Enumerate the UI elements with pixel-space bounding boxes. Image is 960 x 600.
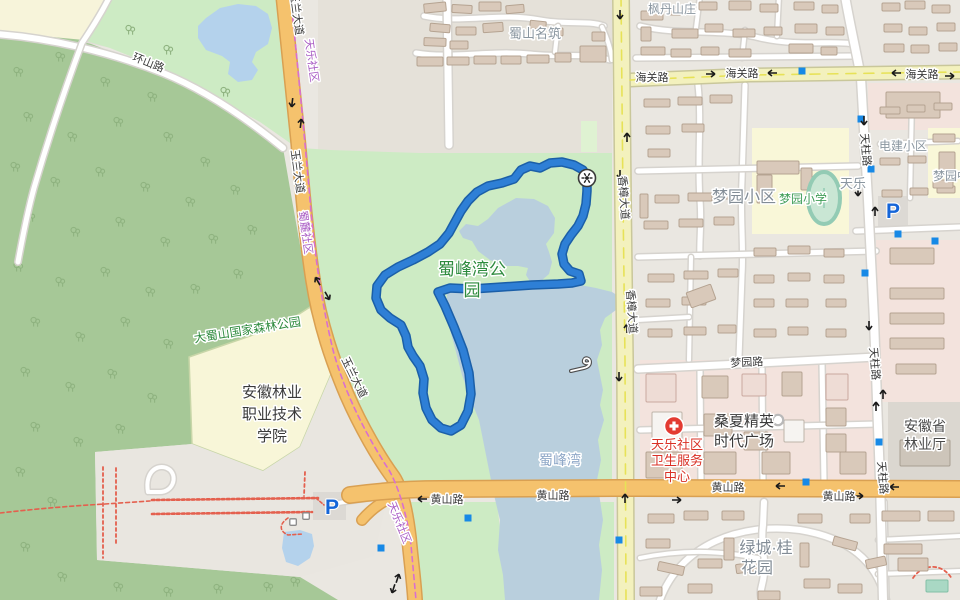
building bbox=[506, 4, 525, 14]
building bbox=[640, 194, 648, 218]
map-label[interactable]: 学院 bbox=[257, 427, 287, 445]
building bbox=[788, 327, 808, 335]
building bbox=[456, 27, 476, 35]
building bbox=[644, 99, 670, 107]
map-label[interactable]: 时代广场 bbox=[714, 433, 774, 450]
map-label[interactable]: 花园 bbox=[741, 559, 773, 577]
parking-icon-east[interactable]: P bbox=[886, 200, 900, 223]
building bbox=[641, 47, 665, 55]
building bbox=[826, 434, 846, 452]
building bbox=[937, 23, 955, 31]
bus-stop-icon[interactable] bbox=[932, 238, 939, 245]
building bbox=[933, 134, 955, 142]
map-label[interactable]: 电建小区 bbox=[879, 139, 927, 153]
map-label[interactable]: 桑夏精英 bbox=[714, 412, 774, 430]
map-label[interactable]: 林业厅 bbox=[904, 436, 946, 452]
building bbox=[788, 273, 810, 281]
map-label: 黄山路 bbox=[431, 492, 464, 506]
building bbox=[483, 22, 504, 32]
bus-stop-icon[interactable] bbox=[803, 479, 810, 486]
building bbox=[754, 248, 776, 256]
building bbox=[474, 56, 496, 64]
building bbox=[910, 188, 928, 195]
building bbox=[580, 46, 606, 62]
building bbox=[939, 152, 955, 170]
building bbox=[880, 158, 900, 165]
building bbox=[672, 29, 698, 38]
building bbox=[684, 327, 706, 335]
building bbox=[655, 195, 679, 203]
building bbox=[907, 105, 925, 112]
map-label[interactable]: 梦园中 bbox=[933, 168, 960, 183]
poi-dot-icon[interactable] bbox=[773, 415, 783, 425]
map-label: 蜀峰湾 bbox=[539, 452, 581, 468]
building bbox=[592, 32, 605, 41]
building bbox=[754, 329, 776, 337]
building bbox=[684, 511, 708, 520]
map-label[interactable]: 梦园小学 bbox=[779, 191, 827, 206]
building bbox=[733, 29, 755, 37]
building bbox=[754, 275, 774, 283]
building bbox=[705, 24, 723, 32]
building bbox=[838, 584, 862, 593]
building bbox=[671, 49, 691, 57]
building bbox=[898, 558, 928, 571]
map-label[interactable]: 安徽林业 bbox=[242, 384, 302, 401]
building bbox=[882, 3, 900, 11]
building bbox=[679, 219, 703, 227]
road-dead-end bbox=[447, 0, 449, 145]
green-plot bbox=[581, 121, 597, 152]
map-label[interactable]: 蜀峰湾公 bbox=[438, 260, 506, 279]
building bbox=[909, 27, 927, 35]
building bbox=[648, 329, 672, 337]
building bbox=[939, 43, 957, 51]
building bbox=[758, 591, 780, 600]
building bbox=[826, 27, 844, 35]
building bbox=[905, 1, 925, 9]
building bbox=[646, 126, 670, 134]
building bbox=[798, 514, 822, 523]
building bbox=[789, 44, 813, 53]
building bbox=[714, 217, 734, 225]
map-label: 海关路 bbox=[726, 66, 759, 80]
building bbox=[826, 408, 846, 426]
building bbox=[729, 49, 751, 57]
map-label[interactable]: 枫丹山庄 bbox=[648, 1, 696, 16]
bus-stop-icon[interactable] bbox=[868, 166, 875, 173]
map-label[interactable]: 天乐社区 bbox=[651, 437, 703, 452]
building bbox=[757, 161, 799, 174]
building bbox=[890, 313, 944, 324]
building bbox=[527, 55, 549, 63]
building bbox=[718, 269, 738, 277]
building bbox=[911, 45, 929, 53]
building bbox=[698, 559, 722, 568]
building bbox=[882, 511, 920, 521]
map-label[interactable]: 职业技术 bbox=[242, 406, 302, 423]
building bbox=[890, 338, 944, 349]
building bbox=[644, 221, 668, 229]
building bbox=[782, 372, 802, 396]
building bbox=[447, 57, 469, 65]
building bbox=[821, 47, 837, 55]
building bbox=[880, 107, 900, 114]
map-label[interactable]: 梦园小区 bbox=[712, 188, 776, 206]
building bbox=[824, 249, 844, 257]
map-label[interactable]: 绿城·桂 bbox=[739, 539, 792, 557]
map-label: 黄山路 bbox=[537, 488, 570, 502]
building bbox=[762, 452, 790, 474]
route-start-icon[interactable] bbox=[579, 170, 596, 187]
building bbox=[890, 288, 944, 299]
building bbox=[450, 41, 468, 49]
map-svg[interactable]: PP环山路玉兰大道玉兰大道玉兰大道天乐社区蜀麓社区天乐社区大蜀山国家森林公园安徽… bbox=[0, 0, 960, 600]
building bbox=[710, 95, 732, 103]
building bbox=[794, 2, 814, 10]
building bbox=[926, 580, 948, 592]
map-label[interactable]: 安徽省 bbox=[904, 418, 946, 434]
hospital-icon[interactable] bbox=[665, 417, 684, 436]
building bbox=[452, 4, 472, 13]
building bbox=[850, 514, 870, 523]
building bbox=[646, 374, 676, 402]
building bbox=[826, 374, 848, 400]
map-label[interactable]: 园 bbox=[464, 281, 481, 300]
svg-text:P: P bbox=[886, 200, 900, 223]
building bbox=[826, 299, 846, 307]
building bbox=[934, 103, 952, 110]
building bbox=[724, 538, 734, 560]
building bbox=[640, 587, 662, 596]
building bbox=[932, 5, 950, 13]
building bbox=[701, 47, 719, 55]
building bbox=[682, 124, 704, 132]
trail-marker-icon-2[interactable] bbox=[303, 513, 310, 520]
building bbox=[804, 579, 830, 588]
building bbox=[800, 543, 809, 567]
map-label: 海关路 bbox=[906, 67, 939, 81]
building bbox=[760, 4, 778, 12]
bus-stop-icon[interactable] bbox=[378, 545, 385, 552]
bus-stop-icon[interactable] bbox=[895, 231, 902, 238]
building bbox=[648, 514, 674, 523]
building bbox=[699, 2, 717, 10]
building bbox=[890, 248, 934, 264]
map-label[interactable]: 卫生服务 bbox=[651, 453, 703, 468]
building bbox=[417, 57, 443, 66]
map-label: 天乐 bbox=[840, 176, 866, 191]
building bbox=[704, 452, 736, 474]
building bbox=[641, 27, 651, 41]
building bbox=[884, 44, 904, 52]
map-label: 海关路 bbox=[636, 70, 669, 84]
bus-stop-icon[interactable] bbox=[465, 515, 472, 522]
building bbox=[928, 511, 954, 521]
building bbox=[688, 193, 712, 201]
building bbox=[424, 38, 446, 47]
map-canvas[interactable]: PP环山路玉兰大道玉兰大道玉兰大道天乐社区蜀麓社区天乐社区大蜀山国家森林公园安徽… bbox=[0, 0, 960, 600]
map-label: 黄山路 bbox=[823, 489, 856, 503]
building bbox=[479, 2, 501, 11]
bus-stop-icon[interactable] bbox=[799, 68, 806, 75]
building bbox=[729, 1, 751, 10]
map-label: 黄山路 bbox=[712, 480, 745, 494]
building bbox=[754, 299, 774, 307]
map-label[interactable]: 中心 bbox=[664, 469, 690, 484]
building bbox=[908, 156, 926, 163]
building bbox=[430, 23, 451, 33]
building bbox=[684, 271, 708, 279]
map-label: 梦园路 bbox=[730, 355, 764, 370]
building bbox=[646, 539, 670, 548]
building bbox=[795, 24, 817, 33]
building bbox=[718, 325, 736, 333]
building bbox=[742, 374, 766, 396]
building bbox=[688, 584, 712, 593]
building bbox=[840, 452, 866, 474]
building bbox=[884, 24, 902, 32]
building bbox=[786, 299, 808, 307]
bus-stop-icon[interactable] bbox=[862, 270, 869, 277]
building bbox=[678, 97, 702, 105]
map-label[interactable]: 蜀山名筑 bbox=[509, 26, 561, 41]
building bbox=[884, 544, 922, 554]
trail-marker-icon-1[interactable] bbox=[290, 519, 297, 526]
building bbox=[648, 274, 674, 282]
building bbox=[764, 27, 782, 35]
building bbox=[822, 5, 838, 13]
parking-icon-west[interactable]: P bbox=[325, 496, 339, 519]
bus-stop-icon[interactable] bbox=[876, 439, 883, 446]
building bbox=[824, 275, 844, 283]
building bbox=[788, 246, 810, 254]
building bbox=[646, 299, 670, 307]
bus-stop-icon[interactable] bbox=[616, 537, 623, 544]
building bbox=[896, 364, 936, 374]
svg-text:P: P bbox=[325, 496, 339, 519]
building bbox=[702, 376, 728, 398]
building bbox=[424, 2, 447, 13]
building bbox=[826, 329, 846, 337]
building bbox=[784, 420, 804, 442]
building bbox=[501, 56, 521, 64]
building bbox=[555, 53, 571, 62]
building bbox=[882, 190, 902, 197]
building bbox=[722, 511, 744, 520]
building bbox=[648, 149, 670, 157]
